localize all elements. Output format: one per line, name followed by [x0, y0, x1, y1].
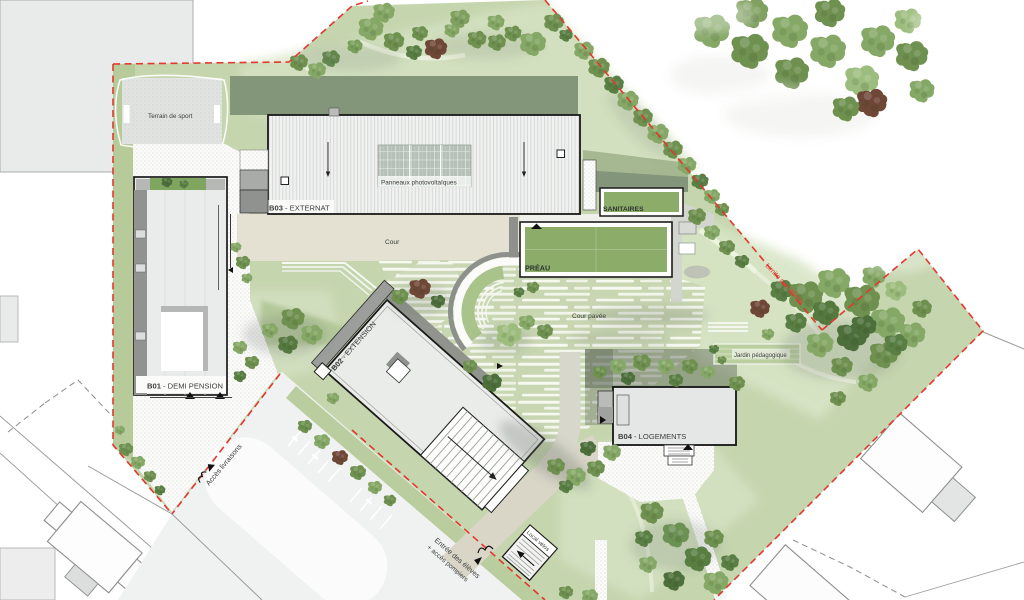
svg-text:Terrain de sport: Terrain de sport — [148, 113, 193, 120]
svg-text:Panneaux photovoltaïques: Panneaux photovoltaïques — [381, 180, 457, 187]
svg-text:Cour: Cour — [385, 239, 400, 246]
svg-text:B01 - DEMI PENSION: B01 - DEMI PENSION — [147, 382, 223, 391]
svg-text:SANITAIRES: SANITAIRES — [603, 206, 644, 213]
svg-text:PRÉAU: PRÉAU — [525, 264, 550, 273]
svg-text:Cour pavée: Cour pavée — [572, 313, 606, 320]
svg-text:Jardin pédagogique: Jardin pédagogique — [734, 353, 787, 359]
svg-text:B04 - LOGEMENTS: B04 - LOGEMENTS — [618, 432, 686, 441]
svg-text:B03 - EXTERNAT: B03 - EXTERNAT — [269, 204, 330, 213]
